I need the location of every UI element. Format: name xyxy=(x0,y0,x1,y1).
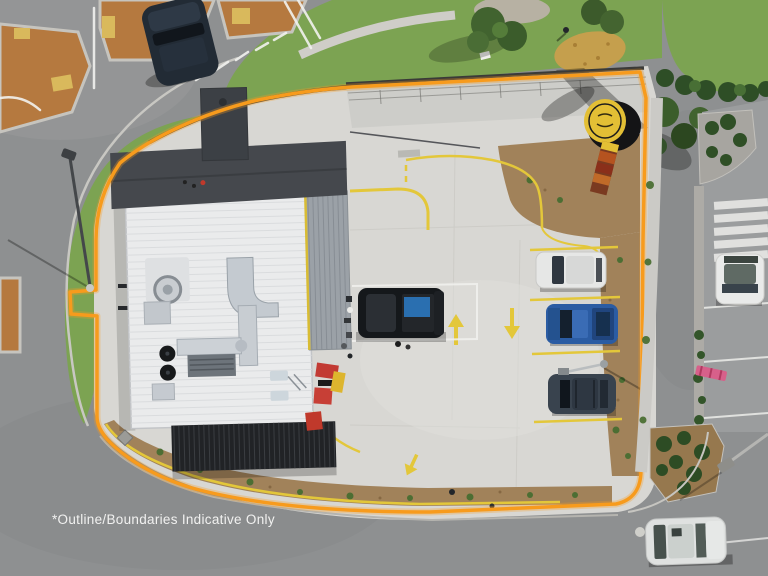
suv-windshield xyxy=(560,380,570,408)
site xyxy=(70,66,656,520)
person-by-truck xyxy=(395,341,401,347)
white-car-neighbour-lot xyxy=(716,254,764,306)
red-umbrella xyxy=(305,411,323,431)
blue-ute-parking-bay xyxy=(546,304,618,346)
aerial-photo: *Outline/Boundaries Indicative Only xyxy=(0,0,768,576)
van-roof xyxy=(566,256,594,284)
ute-tub-inner xyxy=(596,312,610,336)
person-by-truck xyxy=(406,345,411,350)
tactile-pavers xyxy=(14,28,30,39)
car-bonnet xyxy=(705,521,724,560)
dark-suv-parking-bay xyxy=(548,374,616,416)
car-windshield xyxy=(695,523,706,557)
duct-horizontal xyxy=(177,338,241,356)
side-wing-corrugation xyxy=(305,191,351,350)
duct-vertical xyxy=(238,305,258,365)
pole-base xyxy=(600,360,608,368)
car-rear-glass xyxy=(724,256,758,263)
aerial-photo-canvas: *Outline/Boundaries Indicative Only xyxy=(0,0,768,576)
kerb-strip xyxy=(694,186,704,432)
van-rear-glass xyxy=(596,258,602,282)
hvac-box xyxy=(144,302,171,325)
traffic-island-c xyxy=(218,0,306,38)
speed-hump xyxy=(398,149,420,157)
roof-hatch xyxy=(270,371,288,381)
pickup-truck-at-building xyxy=(356,288,446,350)
truck-bonnet xyxy=(434,291,444,335)
lamp-head xyxy=(558,368,569,375)
car-roof xyxy=(724,264,756,284)
hvac-box xyxy=(152,383,174,400)
caption: *Outline/Boundaries Indicative Only xyxy=(52,512,275,527)
white-car-street-parked xyxy=(645,516,733,567)
roof-hatch xyxy=(270,391,288,401)
sign-yellow-disc xyxy=(584,99,626,143)
blue-tarp-load xyxy=(404,297,430,317)
red-umbrella xyxy=(313,387,332,404)
person-on-site xyxy=(449,489,455,495)
white-van-parking-bay xyxy=(536,252,606,292)
truck-cab xyxy=(366,294,396,332)
suv-rear-glass xyxy=(600,380,608,408)
hatch-zone-north xyxy=(352,268,430,283)
car-windshield xyxy=(722,284,758,293)
car-rear-glass xyxy=(653,525,666,559)
van-windshield xyxy=(552,256,564,284)
pole-base xyxy=(86,284,94,292)
median-strip-left xyxy=(0,278,20,352)
tactile-pavers xyxy=(102,16,115,38)
kerb-dome xyxy=(635,527,645,537)
ute-roof xyxy=(572,310,588,338)
ute-windshield xyxy=(560,310,572,338)
car-sunroof xyxy=(672,528,682,536)
ute-bonnet xyxy=(548,308,560,340)
tactile-pavers xyxy=(232,8,250,24)
